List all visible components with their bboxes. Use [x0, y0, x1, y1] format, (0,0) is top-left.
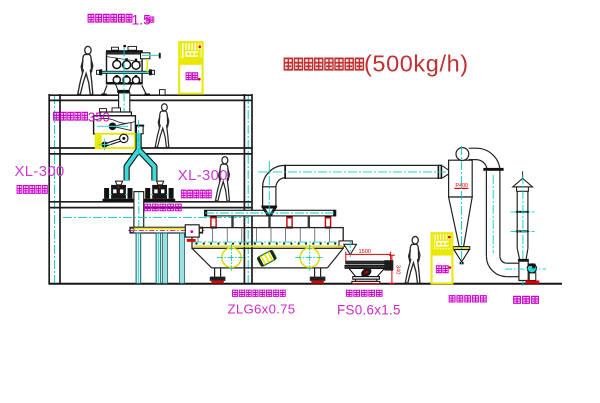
svg-text:1500: 1500 [359, 249, 371, 255]
svg-text:350: 350 [88, 110, 110, 125]
svg-text:(500kg/h): (500kg/h) [364, 51, 469, 77]
svg-text:340: 340 [395, 265, 401, 274]
svg-text:FS0.6x1.5: FS0.6x1.5 [337, 303, 401, 318]
svg-text:XL-300: XL-300 [178, 168, 228, 184]
svg-text:ZLG6x0.75: ZLG6x0.75 [228, 302, 296, 317]
svg-text:1.5: 1.5 [132, 12, 152, 28]
svg-text:XL-300: XL-300 [15, 164, 65, 180]
